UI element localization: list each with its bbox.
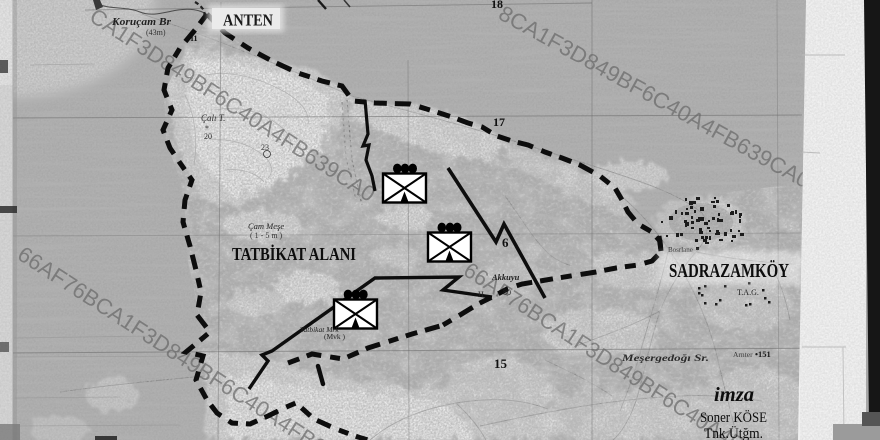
svg-text:Tnk.Ütğm.: Tnk.Ütğm. — [704, 425, 763, 440]
svg-text:15: 15 — [494, 356, 508, 371]
svg-text:ANTEN: ANTEN — [223, 11, 273, 30]
svg-text:TATBİKAT ALANI: TATBİKAT ALANI — [232, 244, 356, 264]
svg-text:Soner KÖSE: Soner KÖSE — [700, 409, 767, 426]
svg-text:11: 11 — [190, 34, 198, 43]
svg-text:(Mvk ): (Mvk ) — [324, 332, 346, 341]
svg-text:•151: •151 — [755, 349, 771, 359]
svg-text:Çalı T.: Çalı T. — [201, 113, 225, 123]
svg-text:20: 20 — [204, 132, 212, 141]
svg-text:Koruçam Br: Koruçam Br — [111, 17, 171, 28]
svg-text:SADRAZAMKÖY: SADRAZAMKÖY — [669, 259, 789, 282]
svg-text:6: 6 — [502, 235, 509, 250]
svg-text:Arnter: Arnter — [733, 350, 753, 359]
svg-text:Akkuyu: Akkuyu — [491, 272, 520, 282]
svg-text:H: H — [478, 290, 484, 299]
svg-text:Çam Meşe: Çam Meşe — [248, 221, 284, 231]
svg-text:Meşergedoğı Sr.: Meşergedoğı Sr. — [621, 354, 709, 364]
svg-text:T.A.G.: T.A.G. — [737, 288, 759, 297]
svg-text:imza: imza — [714, 384, 754, 406]
svg-text:17: 17 — [493, 115, 505, 129]
svg-text:( 1 - 5 m ): ( 1 - 5 m ) — [250, 231, 283, 240]
svg-text:(43m): (43m) — [146, 28, 166, 37]
svg-text:18: 18 — [491, 0, 503, 11]
svg-text:80: 80 — [503, 288, 511, 297]
